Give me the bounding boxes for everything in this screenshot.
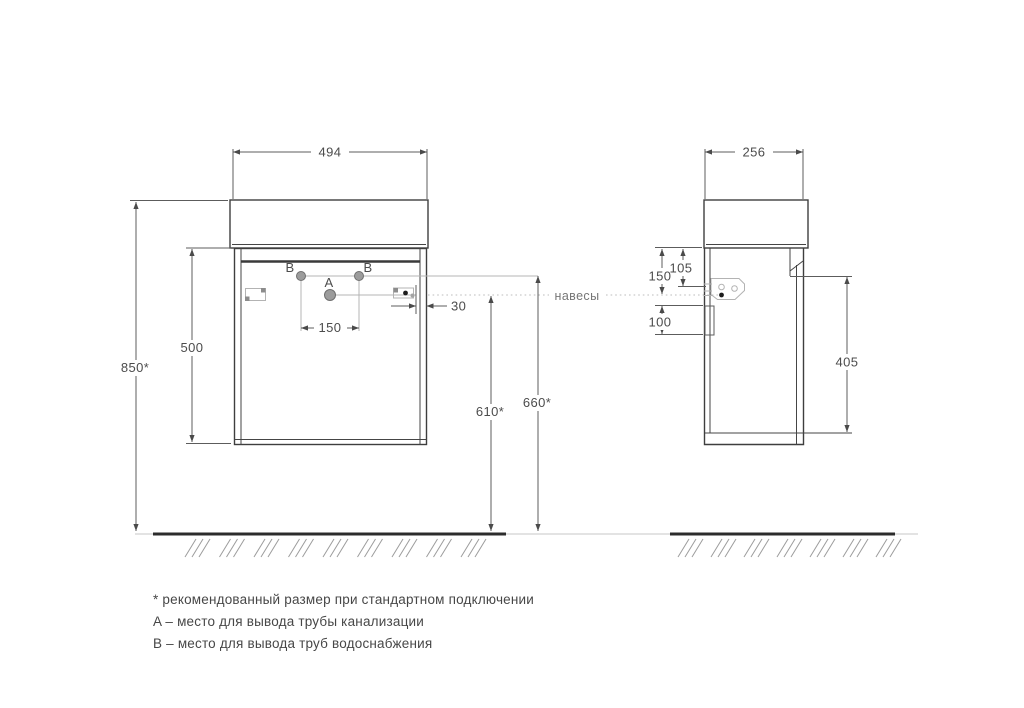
hole-b-right-marker [355,272,364,281]
hangers-callout-label: навесы [555,289,600,303]
legend-note-b: B – место для вывода труб водоснабжения [153,636,432,651]
hole-a-marker [325,290,336,301]
front-supply-height-value: 660* [523,395,551,410]
side-hanger-level-value: 150 [649,269,672,284]
side-bracket-top-value: 105 [670,261,693,276]
legend: * рекомендованный размер при стандартном… [153,592,534,651]
front-total-height-value: 850* [121,360,149,375]
side-rail-value: 100 [649,315,672,330]
front-bracket-offset-value: 30 [451,299,466,314]
hole-b-left-label: B [285,260,294,275]
front-width-value: 494 [319,145,342,160]
wall-bracket-front-right [394,288,415,298]
side-depth-value: 256 [743,145,766,160]
side-countertop [704,200,808,248]
hole-a-label: A [324,275,333,290]
side-door-height-value: 405 [836,355,859,370]
hole-b-right-label: B [363,260,372,275]
hole-b-left-marker [297,272,306,281]
side-carcass [705,249,804,445]
legend-note-asterisk: * рекомендованный размер при стандартном… [153,592,534,607]
bracket-mount-dot [403,291,408,296]
side-view [655,149,852,445]
front-carcass-height-value: 500 [181,340,204,355]
front-drain-height-value: 610* [476,404,504,419]
installation-diagram: 494 850* 500 150 30 610* 660* A B B 256 … [0,0,1024,708]
ground-hatching-side [678,539,901,557]
bracket-mount-dot-side [719,293,724,298]
legend-note-a: A – место для вывода трубы канализации [153,614,424,629]
front-bracket-offset-dimension [391,285,447,314]
wall-bracket-front-left [245,288,266,301]
front-holes-spacing-value: 150 [319,320,342,335]
technical-drawing-page: 494 850* 500 150 30 610* 660* A B B 256 … [0,0,1024,708]
ground-hatching-front [185,539,486,557]
front-view [130,149,718,531]
front-countertop [230,200,428,248]
